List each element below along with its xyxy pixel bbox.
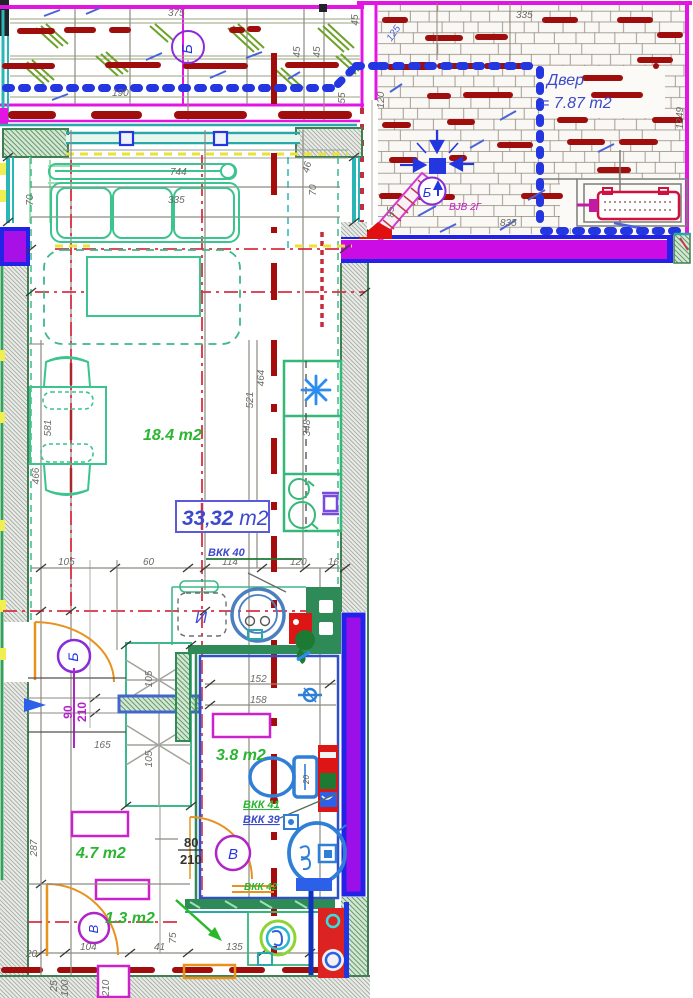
svg-text:Б: Б bbox=[65, 652, 81, 661]
svg-text:70: 70 bbox=[308, 184, 319, 196]
svg-text:45: 45 bbox=[350, 14, 361, 26]
svg-text:16: 16 bbox=[328, 557, 340, 568]
svg-text:104: 104 bbox=[80, 942, 97, 953]
svg-text:85: 85 bbox=[386, 206, 397, 218]
svg-text:Б: Б bbox=[423, 185, 432, 200]
svg-text:3.8 m2: 3.8 m2 bbox=[216, 747, 266, 764]
svg-text:ВКК 41: ВКК 41 bbox=[243, 799, 280, 811]
svg-text:45: 45 bbox=[292, 46, 303, 58]
svg-text:335: 335 bbox=[516, 10, 533, 21]
svg-text:210: 210 bbox=[75, 702, 89, 722]
svg-text:581: 581 bbox=[43, 420, 54, 437]
svg-text:744: 744 bbox=[170, 167, 187, 178]
svg-text:20: 20 bbox=[302, 775, 311, 785]
svg-text:80: 80 bbox=[184, 835, 198, 850]
svg-text:158: 158 bbox=[250, 695, 267, 706]
svg-text:= 7.87 m2: = 7.87 m2 bbox=[540, 95, 612, 112]
svg-text:В: В bbox=[86, 924, 101, 933]
svg-text:20: 20 bbox=[25, 949, 38, 960]
svg-text:120: 120 bbox=[290, 557, 307, 568]
svg-text:835: 835 bbox=[500, 218, 517, 229]
svg-text:25: 25 bbox=[49, 980, 60, 993]
svg-text:114: 114 bbox=[222, 557, 238, 568]
svg-text:33,32 m2: 33,32 m2 bbox=[182, 507, 269, 530]
svg-text:41: 41 bbox=[154, 942, 165, 953]
svg-text:4.7 m2: 4.7 m2 bbox=[75, 845, 126, 862]
svg-text:55: 55 bbox=[337, 92, 348, 104]
svg-text:335: 335 bbox=[168, 195, 185, 206]
svg-text:210: 210 bbox=[180, 852, 202, 867]
svg-text:1.3 m2: 1.3 m2 bbox=[105, 910, 155, 927]
svg-text:70: 70 bbox=[25, 194, 36, 206]
svg-text:В: В bbox=[228, 846, 238, 863]
svg-text:135: 135 bbox=[226, 942, 243, 953]
svg-text:105: 105 bbox=[144, 670, 155, 687]
svg-text:45: 45 bbox=[312, 46, 323, 58]
svg-text:190: 190 bbox=[112, 88, 129, 99]
svg-text:464: 464 bbox=[256, 369, 267, 386]
svg-text:18.4 m2: 18.4 m2 bbox=[143, 427, 202, 444]
svg-text:1249: 1249 bbox=[675, 106, 686, 129]
svg-text:ВКК 42: ВКК 42 bbox=[244, 882, 278, 893]
svg-text:466: 466 bbox=[31, 467, 42, 484]
svg-text:60: 60 bbox=[143, 557, 155, 568]
svg-text:100: 100 bbox=[60, 979, 71, 996]
svg-text:287: 287 bbox=[29, 839, 40, 857]
svg-text:521: 521 bbox=[245, 392, 256, 409]
svg-text:152: 152 bbox=[250, 674, 267, 685]
svg-text:375: 375 bbox=[168, 8, 185, 19]
svg-text:348: 348 bbox=[302, 419, 313, 436]
svg-text:Двер: Двер bbox=[545, 72, 584, 89]
svg-text:120: 120 bbox=[376, 91, 387, 108]
svg-text:75: 75 bbox=[168, 932, 179, 944]
svg-text:210: 210 bbox=[101, 979, 112, 997]
svg-text:105: 105 bbox=[58, 557, 75, 568]
svg-text:ВКК 39: ВКК 39 bbox=[243, 814, 281, 826]
svg-text:ВЈВ 2Г: ВЈВ 2Г bbox=[449, 202, 483, 213]
svg-text:105: 105 bbox=[144, 750, 155, 767]
svg-text:Б: Б bbox=[179, 44, 196, 54]
svg-text:90: 90 bbox=[61, 705, 75, 719]
svg-text:165: 165 bbox=[94, 740, 111, 751]
